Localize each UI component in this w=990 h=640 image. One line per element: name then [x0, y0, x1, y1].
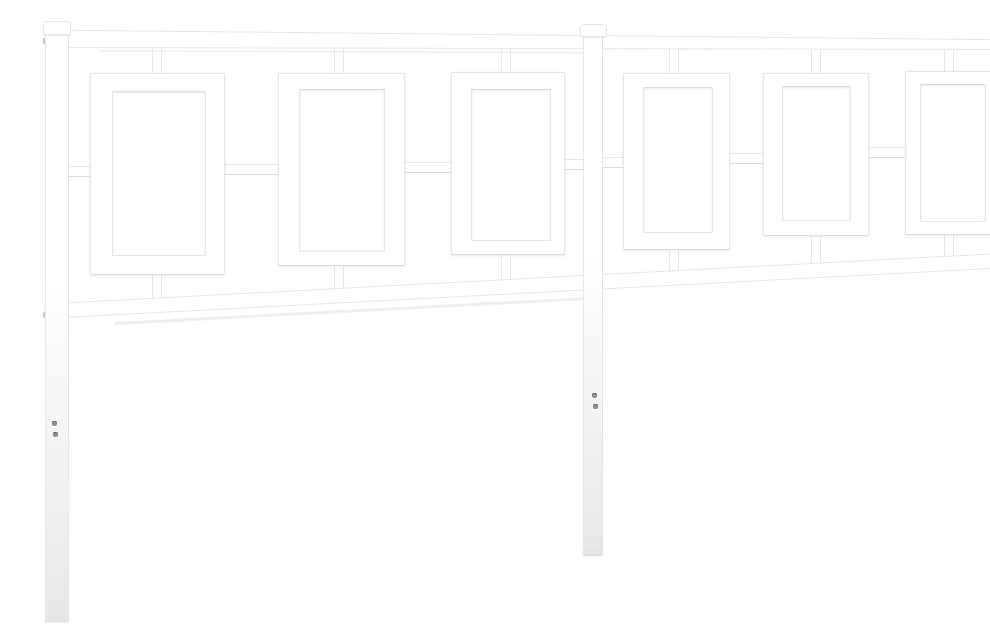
metal-frame-5 — [763, 73, 869, 236]
top-rail — [45, 30, 990, 50]
screw-hole-left-1 — [52, 421, 57, 426]
metal-frame-1 — [90, 73, 225, 275]
metal-frame-4 — [623, 73, 730, 250]
frame-opening-6 — [920, 84, 986, 222]
screw-hole-center-2 — [593, 404, 598, 409]
left-leg-shadow — [43, 618, 69, 623]
frame-opening-2 — [299, 89, 385, 252]
screw-hole-left-2 — [53, 432, 58, 437]
center-post — [583, 33, 603, 556]
frame-opening-3 — [471, 89, 551, 241]
metal-frame-2 — [278, 73, 405, 266]
connector-tube-mid-5 — [725, 153, 767, 164]
frame-opening-5 — [782, 86, 851, 221]
left-post-cap — [43, 21, 71, 35]
frame-opening-4 — [643, 87, 713, 233]
connector-tube-mid-6 — [864, 147, 909, 158]
headboard-photo: White metal headboard — [40, 16, 990, 624]
top-rail-shadow-line — [100, 50, 585, 54]
center-leg-shadow — [581, 552, 603, 557]
metal-frame-3 — [451, 72, 565, 255]
weld-mark-rail — [43, 312, 45, 318]
center-post-cap — [580, 24, 607, 37]
connector-tube-mid-1 — [220, 164, 282, 175]
frame-opening-1 — [112, 91, 206, 256]
left-post — [45, 31, 69, 622]
connector-tube-mid-2 — [400, 162, 454, 173]
metal-frame-6 — [905, 71, 990, 235]
screw-hole-center-1 — [592, 393, 597, 398]
weld-mark-top — [43, 38, 45, 44]
